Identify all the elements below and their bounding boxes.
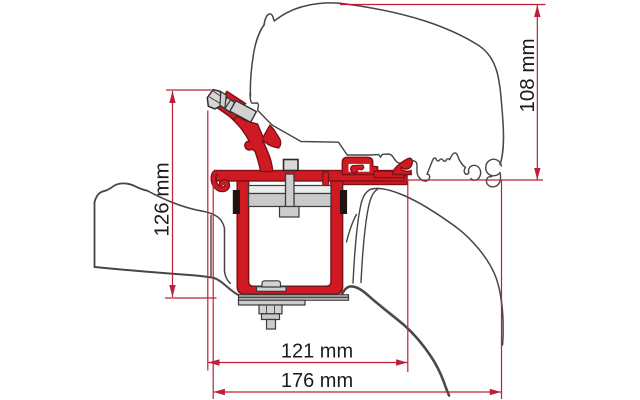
svg-text:126 mm: 126 mm [151,162,174,236]
svg-text:121 mm: 121 mm [281,341,353,363]
svg-text:176 mm: 176 mm [281,370,353,392]
svg-text:108 mm: 108 mm [516,38,539,112]
